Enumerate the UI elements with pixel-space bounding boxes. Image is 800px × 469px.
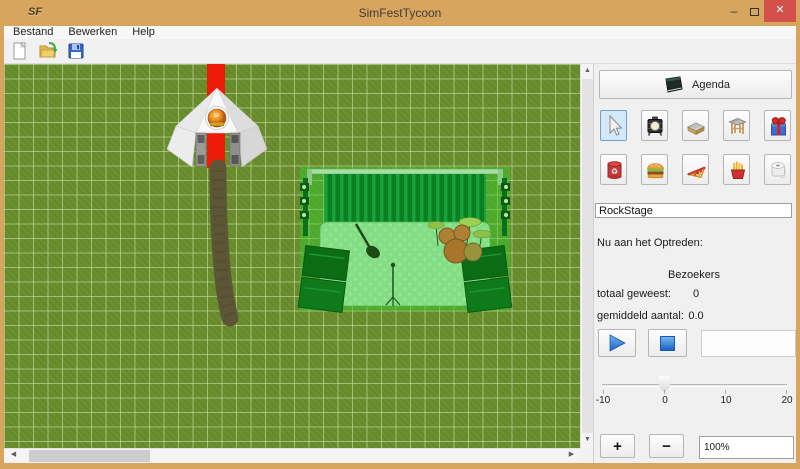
trash-bin-tool-button[interactable]: ♻ [600,154,627,185]
slider-tick [725,390,726,394]
new-file-icon [10,41,30,61]
agenda-label: Agenda [692,79,730,91]
pizza-icon [685,158,707,182]
spotlight-tool-button[interactable] [641,110,668,141]
open-file-icon [38,41,58,61]
play-icon [607,334,627,352]
window-content: Bestand Bewerken Help [4,26,796,463]
spotlight-icon [644,114,666,138]
pizza-stand-tool-button[interactable] [682,154,709,185]
gift-tool-button[interactable] [764,110,791,141]
map-scene: SF [4,64,580,448]
scroll-left-icon[interactable]: ◀ [7,449,20,462]
slider-label-min: -10 [588,395,618,406]
stage-truss [308,169,502,174]
slider-tick [664,390,665,394]
svg-text:♻: ♻ [610,167,617,176]
minimize-button[interactable]: – [724,0,744,24]
menu-help[interactable]: Help [126,26,161,39]
stage-name-input[interactable] [595,203,792,218]
slider-tick [786,390,787,394]
zoom-level-field[interactable] [699,436,794,459]
horizontal-scroll-thumb[interactable] [29,450,150,462]
now-playing-label: Nu aan het Optreden: [597,237,703,249]
new-file-button[interactable] [8,40,32,62]
total-visitors-value: 0 [656,288,736,300]
status-box [701,330,796,357]
select-tool-button[interactable] [600,110,627,141]
burger-icon [644,158,666,182]
stage-curtain [324,174,486,222]
play-button[interactable] [598,329,636,357]
truss-tool-button[interactable] [723,110,750,141]
fries-stand-tool-button[interactable] [723,154,750,185]
stop-icon [660,336,675,351]
agenda-button[interactable]: Agenda [599,70,792,99]
titlebar[interactable]: SF SimFestTycoon – ✕ [0,0,800,26]
menu-bewerken[interactable]: Bewerken [62,26,123,39]
stage-deck-tool-button[interactable] [682,110,709,141]
fries-icon [726,158,748,182]
tent-speaker-right [230,133,240,166]
stage-deck-icon [685,114,707,138]
menubar: Bestand Bewerken Help [4,26,796,39]
zoom-in-button[interactable]: + [600,434,635,458]
visitors-header: Bezoekers [634,269,754,281]
toolbar [4,39,796,64]
dirt-path[interactable] [218,168,230,318]
stop-button[interactable] [648,329,687,357]
agenda-book-icon [661,76,685,94]
close-button[interactable]: ✕ [764,0,796,22]
maximize-button[interactable] [744,0,764,24]
trash-bin-icon: ♻ [603,158,625,182]
save-file-icon [66,41,86,61]
control-panel: Agenda [593,64,796,463]
zoom-out-button[interactable]: − [649,434,684,458]
slider-track[interactable] [602,384,787,387]
slider-tick [603,390,604,394]
truss-icon [726,114,748,138]
toilet-paper-icon [767,158,789,182]
tool-row-structures [600,110,791,142]
tent-speaker-left [196,133,206,166]
scroll-right-icon[interactable]: ▶ [565,449,578,462]
horizontal-scrollbar[interactable]: ◀ ▶ [4,448,580,462]
festival-map-canvas[interactable]: SF [4,64,580,448]
save-file-button[interactable] [64,40,88,62]
gift-icon [767,114,789,138]
simfest-logo: SF [206,107,229,130]
toilet-tool-button[interactable] [764,154,791,185]
cursor-icon [603,114,625,138]
slider-label-zero: 0 [650,395,680,406]
maximize-icon [750,8,759,16]
open-file-button[interactable] [36,40,60,62]
svg-text:SF: SF [214,113,220,119]
slider-label-max: 20 [772,395,800,406]
burger-stand-tool-button[interactable] [641,154,668,185]
slider-label-ten: 10 [711,395,741,406]
vertical-scrollbar[interactable]: ▲ ▼ [580,64,593,448]
app-window: SF SimFestTycoon – ✕ Bestand Bewerken He… [0,0,800,469]
menu-bestand[interactable]: Bestand [7,26,59,39]
average-visitors-value: 0.0 [656,310,736,322]
tool-row-services: ♻ [600,154,791,186]
rock-stage[interactable] [298,167,511,312]
window-title: SimFestTycoon [0,6,800,20]
vertical-scroll-thumb[interactable] [582,79,593,433]
